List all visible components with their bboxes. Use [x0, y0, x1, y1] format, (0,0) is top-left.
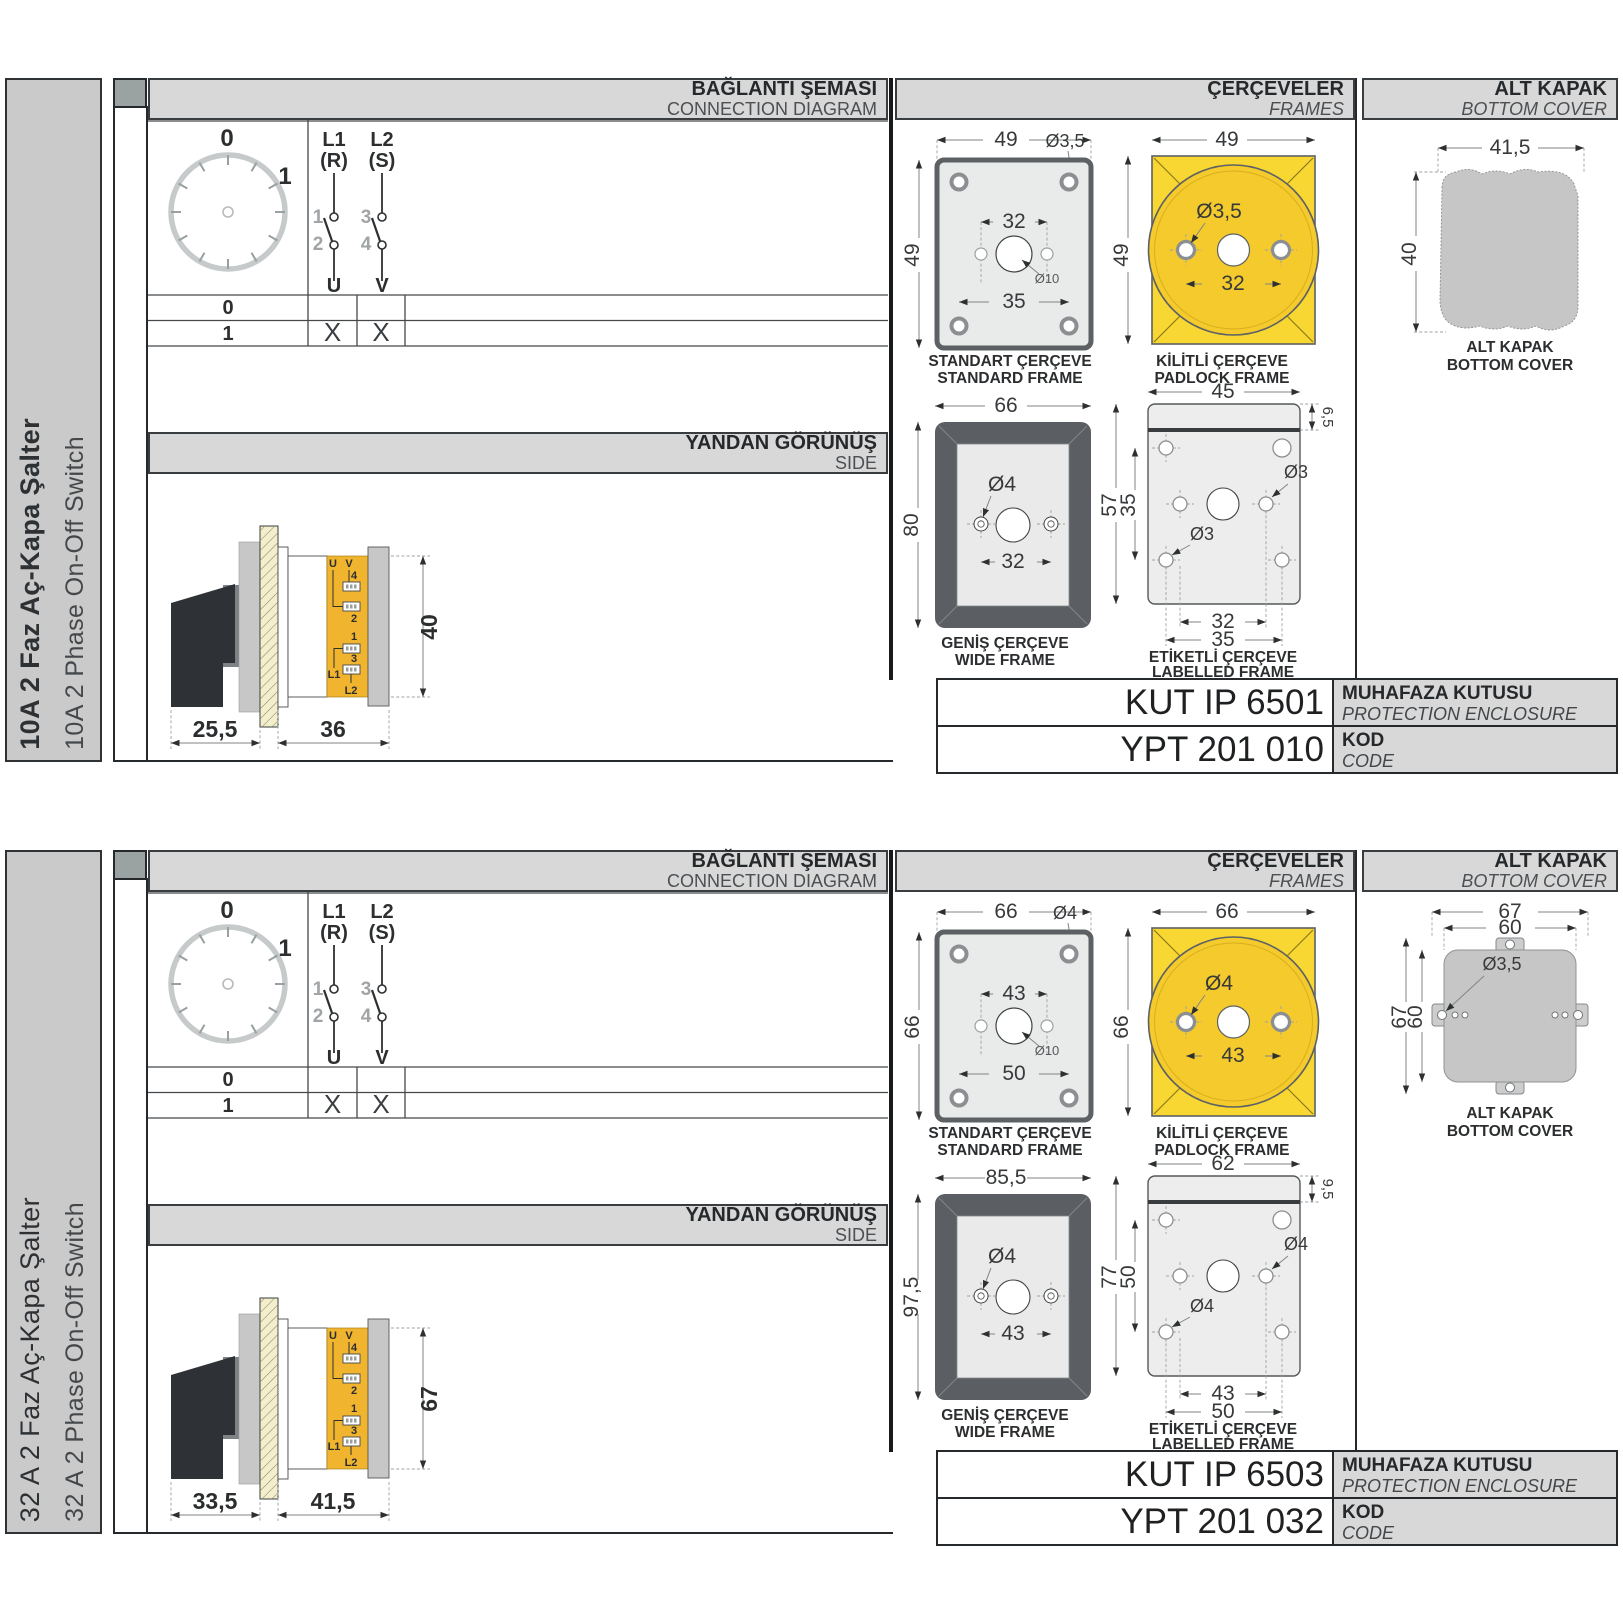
connection-diagram-drawing: 0 1 L1 (R) L2 (S) 1 2 3 4 U V [148, 892, 888, 1120]
kod-label-cell: KOD CODE [1332, 1497, 1618, 1546]
dim-hole: Ø3,5 [1482, 954, 1521, 974]
dim-height: 67 [416, 1386, 442, 1412]
dim-width: 66 [994, 394, 1017, 417]
dim-span-outer: 35 [1002, 290, 1025, 313]
label-1: 1 [351, 631, 357, 643]
phase-l2: L2 [370, 901, 393, 923]
dim-height: 97,5 [900, 1277, 923, 1318]
header-tr: ÇERÇEVELER [1207, 79, 1344, 100]
product-title-strip: 10A 2 Faz Aç-Kapa Şalter 10A 2 Phase On-… [5, 78, 102, 762]
divider-line [889, 78, 893, 680]
handle-silhouette [171, 584, 235, 707]
header-tr: YANDAN GÖRÜNÜŞ [685, 1205, 877, 1226]
dim-span: 32 [1001, 550, 1024, 573]
kod-code: YPT 201 032 [1120, 1502, 1324, 1542]
frame-caption-en: STANDARD FRAME [937, 370, 1082, 387]
label-v: V [345, 1330, 353, 1342]
frame-caption-en: STANDARD FRAME [937, 1142, 1082, 1159]
dim-corner-hole: Ø3,5 [1045, 131, 1084, 151]
label-u: U [329, 1330, 337, 1342]
frame-caption-tr: KİLİTLİ ÇERÇEVE [1156, 353, 1288, 370]
dial-position-1: 1 [278, 163, 291, 190]
header-tr: ALT KAPAK [1494, 851, 1607, 872]
header-en: CONNECTION DIAGRAM [667, 100, 877, 119]
wide-frame-drawing: 66 80 Ø4 32 GENİŞ ÇERÇEVE WIDE FRAME [905, 392, 1100, 672]
switch-symbol: L1 (R) L2 (S) 1 2 3 4 U V [313, 901, 396, 1069]
standard-frame-drawing: 66 Ø4 66 43 Ø10 50 STANDART ÇERÇEVE STAN… [905, 898, 1100, 1160]
divider-line [113, 78, 115, 762]
header-en: FRAMES [1269, 872, 1344, 891]
cover-caption-tr: ALT KAPAK [1466, 1105, 1554, 1122]
dim-hole: Ø3,5 [1196, 200, 1242, 223]
dim-hole-right: Ø3 [1284, 462, 1308, 482]
enclosure-code: KUT IP 6501 [1125, 683, 1324, 723]
row-1-label: 1 [222, 1095, 233, 1117]
enclosure-label-tr: MUHAFAZA KUTUSU [1342, 683, 1532, 704]
kod-code-cell: YPT 201 032 [936, 1497, 1334, 1546]
row-0-label: 0 [222, 1069, 233, 1091]
row-1-label: 1 [222, 323, 233, 345]
dim-span: 43 [1001, 1322, 1024, 1345]
bottom-cover-drawing: 67 60 67 60 Ø3,5 ALT KAPAK BOTTOM COVER [1378, 902, 1618, 1142]
kod-label-tr: KOD [1342, 1502, 1384, 1523]
row-1-v-mark: X [372, 1089, 389, 1119]
header-en: BOTTOM COVER [1461, 100, 1607, 119]
product-title-turkish: 32 A 2 Faz Aç-Kapa Şalter [15, 1197, 46, 1522]
labelled-frame-drawing: 45 6,5 57 35 Ø3 Ø3 [1102, 378, 1332, 676]
bottom-cover-drawing: 41,5 40 ALT KAPAK BOTTOM COVER [1378, 136, 1618, 376]
dim-center-hole: Ø10 [1035, 271, 1060, 286]
label-2: 2 [351, 1385, 357, 1397]
row-1-v-mark: X [372, 317, 389, 347]
phase-l1-alt: (R) [320, 150, 348, 172]
label-l1: L1 [328, 1441, 341, 1453]
labelled-frame-drawing: 62 9,5 77 50 Ø4 Ø4 [1102, 1150, 1332, 1448]
label-v: V [345, 558, 353, 570]
dim-span-outer: 35 [1211, 628, 1234, 651]
header-tr: BAĞLANTI ŞEMASI [691, 79, 877, 100]
handle-silhouette [171, 1356, 235, 1479]
standard-frame-drawing: 49 Ø3,5 49 32 Ø10 35 STANDART ÇERÇEVE ST… [905, 126, 1100, 388]
row-1-u-mark: X [324, 1089, 341, 1119]
kod-label-tr: KOD [1342, 730, 1384, 751]
dim-hole-left: Ø4 [1190, 1296, 1214, 1316]
dim-hole: Ø4 [988, 1245, 1016, 1268]
terminal-v: V [375, 1047, 389, 1069]
dim-height: 80 [900, 513, 923, 536]
product-section: 10A 2 Faz Aç-Kapa Şalter 10A 2 Phase On-… [0, 78, 1623, 778]
enclosure-label-en: PROTECTION ENCLOSURE [1342, 1476, 1577, 1496]
dim-width: 41,5 [1490, 136, 1531, 159]
dial-position-1: 1 [278, 935, 291, 962]
dim-hole: Ø4 [1205, 972, 1233, 995]
dim-hole-left: Ø3 [1190, 524, 1214, 544]
dim-span-outer: 50 [1211, 1400, 1234, 1423]
frame-caption-tr: GENİŞ ÇERÇEVE [941, 1407, 1068, 1424]
header-tr: ALT KAPAK [1494, 79, 1607, 100]
dim-height-inner: 60 [1404, 1005, 1427, 1028]
enclosure-code-cell: KUT IP 6503 [936, 1450, 1334, 1499]
contact-2: 2 [313, 1006, 324, 1027]
enclosure-code-cell: KUT IP 6501 [936, 678, 1334, 727]
truth-table: 0 1 X X [148, 1067, 888, 1119]
dim-width: 49 [994, 128, 1017, 151]
header-frames: ÇERÇEVELER FRAMES [895, 78, 1355, 120]
product-title-strip: 32 A 2 Faz Aç-Kapa Şalter 32 A 2 Phase O… [5, 850, 102, 1534]
label-3: 3 [351, 1425, 357, 1437]
contact-2: 2 [313, 234, 324, 255]
header-bottom-cover: ALT KAPAK BOTTOM COVER [1362, 78, 1618, 120]
dim-hole-right: Ø4 [1284, 1234, 1308, 1254]
dim-height: 40 [416, 614, 442, 640]
corner-square [113, 850, 147, 880]
label-l2: L2 [345, 685, 358, 697]
dim-width: 45 [1211, 380, 1234, 403]
dim-front: 33,5 [193, 1488, 238, 1514]
header-bottom-cover: ALT KAPAK BOTTOM COVER [1362, 850, 1618, 892]
kod-label-en: CODE [1342, 1523, 1394, 1543]
label-1: 1 [351, 1403, 357, 1415]
dim-span-inner: 32 [1002, 210, 1025, 233]
enclosure-label-cell: MUHAFAZA KUTUSU PROTECTION ENCLOSURE [1332, 1450, 1618, 1499]
header-side-view: YANDAN GÖRÜNÜŞ SIDE [148, 1204, 888, 1246]
dim-width-inner: 60 [1498, 916, 1521, 939]
dial-position-0: 0 [220, 125, 233, 152]
product-title-english: 32 A 2 Phase On-Off Switch [61, 1202, 90, 1522]
product-title-english: 10A 2 Phase On-Off Switch [61, 436, 90, 750]
divider-line [113, 850, 115, 1534]
label-4: 4 [351, 1342, 358, 1354]
dim-tab: 9,5 [1319, 1179, 1336, 1200]
rotary-dial [171, 155, 285, 269]
terminal-v: V [375, 275, 389, 297]
dim-center-hole: Ø10 [1035, 1043, 1060, 1058]
label-u: U [329, 558, 337, 570]
side-view-drawing: U V 4 2 1 3 L1 L2 [160, 482, 460, 774]
dim-width: 62 [1211, 1152, 1234, 1175]
label-l1: L1 [328, 669, 341, 681]
dim-width: 49 [1215, 128, 1238, 151]
frame-caption-tr: STANDART ÇERÇEVE [928, 353, 1091, 370]
dim-height-inner: 50 [1117, 1265, 1140, 1288]
side-view-drawing: U V 4 2 1 3 L1 L2 [160, 1254, 460, 1546]
connection-diagram-drawing: 0 1 L1 (R) L2 (S) 1 2 3 4 U V [148, 120, 888, 348]
header-en: SIDE [835, 454, 877, 473]
kod-code: YPT 201 010 [1120, 730, 1324, 770]
frame-caption-en: WIDE FRAME [955, 1424, 1055, 1441]
header-tr: BAĞLANTI ŞEMASI [691, 851, 877, 872]
cover-caption-tr: ALT KAPAK [1466, 339, 1554, 356]
dim-height-inner: 35 [1117, 493, 1140, 516]
phase-l2-alt: (S) [369, 922, 396, 944]
dial-position-0: 0 [220, 897, 233, 924]
rotary-dial [171, 927, 285, 1041]
phase-l1-alt: (R) [320, 922, 348, 944]
switch-symbol: L1 (R) L2 (S) 1 2 3 4 U V [313, 129, 396, 297]
header-en: SIDE [835, 1226, 877, 1245]
label-4: 4 [351, 570, 358, 582]
kod-code-cell: YPT 201 010 [936, 725, 1334, 774]
dim-corner-hole: Ø4 [1053, 903, 1077, 923]
dim-height: 40 [1398, 242, 1421, 265]
dim-height: 66 [1110, 1015, 1133, 1038]
row-1-u-mark: X [324, 317, 341, 347]
terminal-u: U [327, 275, 341, 297]
dim-hole: Ø4 [988, 473, 1016, 496]
dim-body: 36 [320, 716, 346, 742]
enclosure-label-en: PROTECTION ENCLOSURE [1342, 704, 1577, 724]
enclosure-label-cell: MUHAFAZA KUTUSU PROTECTION ENCLOSURE [1332, 678, 1618, 727]
header-side-view: YANDAN GÖRÜNÜŞ SIDE [148, 432, 888, 474]
padlock-frame-drawing: 49 49 Ø3,5 32 KİLİTLİ ÇERÇEVE PADLOCK FR… [1112, 126, 1327, 388]
frame-caption-tr: GENİŞ ÇERÇEVE [941, 635, 1068, 652]
contact-1: 1 [313, 207, 324, 228]
contact-3: 3 [361, 207, 372, 228]
padlock-frame-drawing: 66 66 Ø4 43 KİLİTLİ ÇERÇEVE PADLOCK FRAM… [1112, 898, 1327, 1160]
contact-1: 1 [313, 979, 324, 1000]
corner-square [113, 78, 147, 108]
contact-4: 4 [361, 234, 372, 255]
header-frames: ÇERÇEVELER FRAMES [895, 850, 1355, 892]
frame-caption-en: WIDE FRAME [955, 652, 1055, 669]
dim-span: 43 [1221, 1044, 1244, 1067]
phase-l1: L1 [322, 901, 345, 923]
dim-width: 66 [1215, 900, 1238, 923]
divider-line [1355, 850, 1357, 1452]
header-tr: YANDAN GÖRÜNÜŞ [685, 433, 877, 454]
cover-caption-en: BOTTOM COVER [1447, 1123, 1573, 1140]
kod-label-en: CODE [1342, 751, 1394, 771]
dim-width: 85,5 [986, 1166, 1027, 1189]
enclosure-code: KUT IP 6503 [1125, 1455, 1324, 1495]
terminal-u: U [327, 1047, 341, 1069]
dim-height: 49 [901, 243, 924, 266]
header-en: CONNECTION DIAGRAM [667, 872, 877, 891]
product-title-turkish: 10A 2 Faz Aç-Kapa Şalter [15, 418, 46, 750]
frame-caption-tr: KİLİTLİ ÇERÇEVE [1156, 1125, 1288, 1142]
dim-span: 32 [1221, 272, 1244, 295]
header-en: FRAMES [1269, 100, 1344, 119]
dim-height: 49 [1110, 243, 1133, 266]
header-tr: ÇERÇEVELER [1207, 851, 1344, 872]
phase-l1: L1 [322, 129, 345, 151]
truth-table: 0 1 X X [148, 295, 888, 347]
header-connection-diagram: BAĞLANTI ŞEMASI CONNECTION DIAGRAM [148, 78, 888, 120]
phase-l2: L2 [370, 129, 393, 151]
label-2: 2 [351, 613, 357, 625]
phase-l2-alt: (S) [369, 150, 396, 172]
label-3: 3 [351, 653, 357, 665]
kod-label-cell: KOD CODE [1332, 725, 1618, 774]
dim-span-outer: 50 [1002, 1062, 1025, 1085]
product-section: 32 A 2 Faz Aç-Kapa Şalter 32 A 2 Phase O… [0, 850, 1623, 1550]
row-0-label: 0 [222, 297, 233, 319]
divider-line [889, 850, 893, 1452]
dim-front: 25,5 [193, 716, 238, 742]
wide-frame-drawing: 85,5 97,5 Ø4 43 GENİŞ ÇERÇEVE WIDE FRAME [905, 1164, 1100, 1444]
cover-caption-en: BOTTOM COVER [1447, 357, 1573, 374]
dim-tab: 6,5 [1319, 407, 1336, 428]
label-l2: L2 [345, 1457, 358, 1469]
dim-span-inner: 43 [1002, 982, 1025, 1005]
dim-height: 66 [901, 1015, 924, 1038]
contact-4: 4 [361, 1006, 372, 1027]
cover-shape [1440, 169, 1578, 330]
frame-caption-tr: STANDART ÇERÇEVE [928, 1125, 1091, 1142]
dim-width: 66 [994, 900, 1017, 923]
contact-3: 3 [361, 979, 372, 1000]
divider-line [1355, 78, 1357, 680]
header-en: BOTTOM COVER [1461, 872, 1607, 891]
header-connection-diagram: BAĞLANTI ŞEMASI CONNECTION DIAGRAM [148, 850, 888, 892]
dim-body: 41,5 [311, 1488, 356, 1514]
enclosure-label-tr: MUHAFAZA KUTUSU [1342, 1455, 1532, 1476]
